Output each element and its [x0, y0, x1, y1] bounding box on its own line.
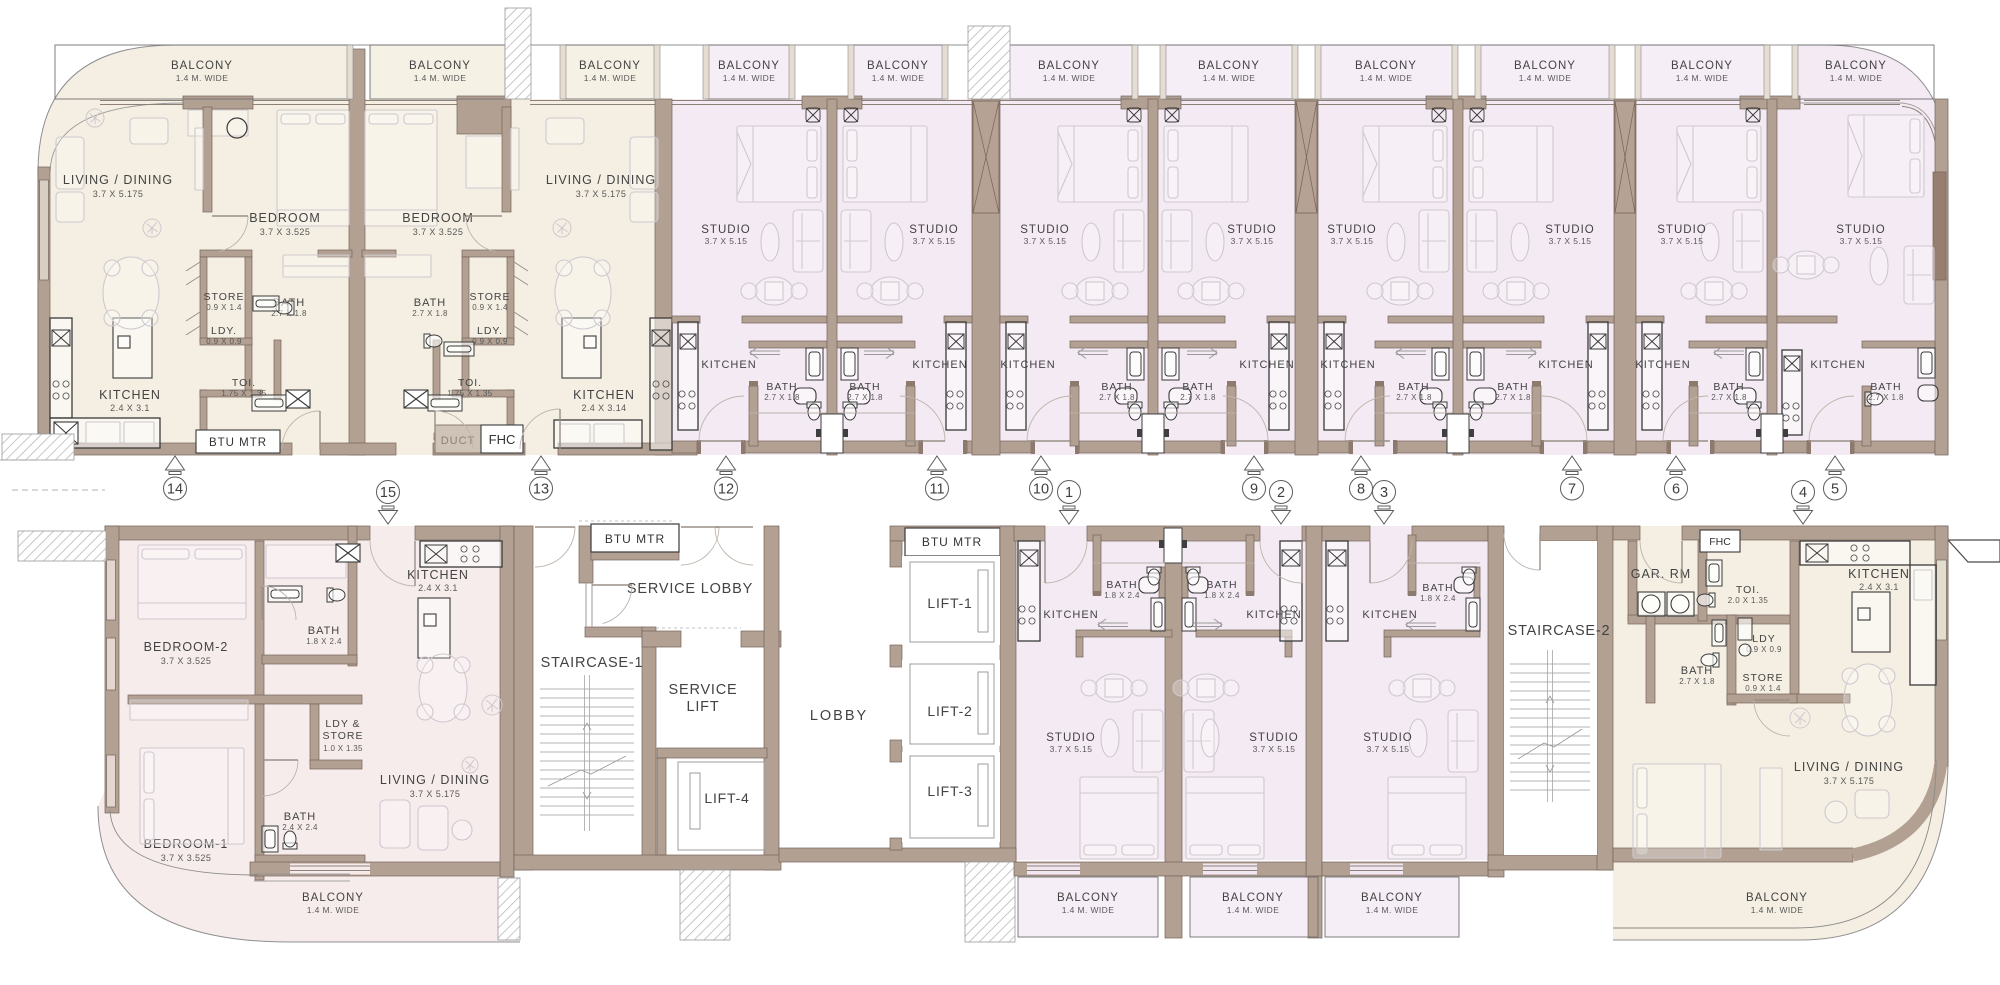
svg-text:3.7 X 5.15: 3.7 X 5.15	[1050, 744, 1093, 754]
svg-text:BALCONY: BALCONY	[1222, 892, 1284, 904]
svg-text:LIFT-4: LIFT-4	[704, 790, 749, 806]
svg-text:KITCHEN: KITCHEN	[1246, 609, 1301, 621]
svg-text:KITCHEN: KITCHEN	[912, 359, 967, 371]
svg-text:0.9 X 1.4: 0.9 X 1.4	[472, 303, 508, 312]
svg-text:5: 5	[1831, 482, 1839, 498]
svg-text:2.4 X 3.14: 2.4 X 3.14	[581, 403, 626, 413]
svg-text:3.7 X 5.15: 3.7 X 5.15	[913, 236, 956, 246]
svg-text:1.4 M. WIDE: 1.4 M. WIDE	[176, 73, 229, 83]
svg-text:KITCHEN: KITCHEN	[1810, 359, 1865, 371]
svg-text:LDY &: LDY &	[325, 718, 360, 730]
svg-text:KITCHEN: KITCHEN	[99, 388, 161, 402]
svg-text:BTU MTR: BTU MTR	[922, 535, 982, 549]
svg-text:BALCONY: BALCONY	[1198, 60, 1260, 72]
svg-text:3.7 X 3.525: 3.7 X 3.525	[161, 853, 211, 863]
svg-text:1.0 X 1.35: 1.0 X 1.35	[323, 744, 363, 753]
svg-text:SERVICE LOBBY: SERVICE LOBBY	[627, 581, 753, 597]
svg-text:2.7 X 1.8: 2.7 X 1.8	[764, 393, 800, 402]
svg-text:8: 8	[1357, 482, 1365, 498]
svg-text:3.7 X 5.15: 3.7 X 5.15	[1367, 744, 1410, 754]
svg-text:2.4 X 3.1: 2.4 X 3.1	[1859, 582, 1899, 592]
svg-text:1.4 M. WIDE: 1.4 M. WIDE	[1360, 73, 1413, 83]
svg-text:0.9 X 1.4: 0.9 X 1.4	[206, 303, 242, 312]
svg-text:LIFT-2: LIFT-2	[927, 703, 972, 719]
svg-text:2.4 X 3.1: 2.4 X 3.1	[418, 583, 458, 593]
svg-text:LIVING / DINING: LIVING / DINING	[63, 173, 173, 187]
svg-text:3.7 X 3.525: 3.7 X 3.525	[260, 227, 310, 237]
svg-text:STAIRCASE-2: STAIRCASE-2	[1508, 623, 1611, 639]
svg-text:2.7 X 1.8: 2.7 X 1.8	[1711, 393, 1747, 402]
svg-text:0.9 X 1.4: 0.9 X 1.4	[1745, 684, 1781, 693]
svg-text:STUDIO: STUDIO	[701, 224, 750, 236]
svg-text:3.7 X 5.175: 3.7 X 5.175	[1824, 776, 1874, 786]
svg-text:3.7 X 5.15: 3.7 X 5.15	[1549, 236, 1592, 246]
svg-text:BATH: BATH	[849, 381, 880, 393]
svg-text:BATH: BATH	[1101, 381, 1132, 393]
svg-text:STORE: STORE	[1743, 672, 1784, 684]
svg-text:14: 14	[167, 482, 183, 498]
svg-text:3.7 X 3.525: 3.7 X 3.525	[413, 227, 463, 237]
svg-text:KITCHEN: KITCHEN	[1635, 359, 1690, 371]
svg-text:3.7 X 5.175: 3.7 X 5.175	[576, 189, 626, 199]
svg-text:BEDROOM: BEDROOM	[402, 211, 474, 225]
svg-text:KITCHEN: KITCHEN	[1538, 359, 1593, 371]
svg-text:1: 1	[1065, 485, 1073, 501]
svg-text:1.4 M. WIDE: 1.4 M. WIDE	[1366, 905, 1419, 915]
svg-text:BATH: BATH	[1106, 579, 1137, 591]
svg-text:LIFT-3: LIFT-3	[927, 783, 972, 799]
svg-text:KITCHEN: KITCHEN	[1362, 609, 1417, 621]
svg-text:1.4 M. WIDE: 1.4 M. WIDE	[1062, 905, 1115, 915]
svg-text:2.4 X 3.1: 2.4 X 3.1	[110, 403, 150, 413]
svg-text:1.4 M. WIDE: 1.4 M. WIDE	[1043, 73, 1096, 83]
svg-text:STORE: STORE	[470, 291, 511, 303]
svg-text:BALCONY: BALCONY	[579, 60, 641, 72]
svg-text:BATH: BATH	[414, 297, 447, 309]
svg-text:4: 4	[1799, 485, 1807, 501]
svg-text:STORE: STORE	[323, 730, 364, 742]
svg-text:1.4 M. WIDE: 1.4 M. WIDE	[1676, 73, 1729, 83]
svg-text:STUDIO: STUDIO	[1020, 224, 1069, 236]
svg-text:13: 13	[533, 482, 549, 498]
svg-text:KITCHEN: KITCHEN	[1848, 567, 1910, 581]
svg-text:KITCHEN: KITCHEN	[1320, 359, 1375, 371]
svg-text:BALCONY: BALCONY	[171, 60, 233, 72]
svg-text:BALCONY: BALCONY	[1514, 60, 1576, 72]
svg-text:LIVING / DINING: LIVING / DINING	[380, 773, 490, 787]
svg-text:BATH: BATH	[1870, 381, 1901, 393]
svg-text:BALCONY: BALCONY	[1355, 60, 1417, 72]
svg-text:1.4 M. WIDE: 1.4 M. WIDE	[872, 73, 925, 83]
svg-text:1.4 M. WIDE: 1.4 M. WIDE	[1203, 73, 1256, 83]
svg-text:1.8 X 2.4: 1.8 X 2.4	[1420, 594, 1456, 603]
svg-text:BATH: BATH	[1182, 381, 1213, 393]
svg-text:3.7 X 5.175: 3.7 X 5.175	[93, 189, 143, 199]
svg-text:BEDROOM: BEDROOM	[249, 211, 321, 225]
svg-text:2.7 X 1.8: 2.7 X 1.8	[1679, 677, 1715, 686]
svg-text:2.7 X 1.8: 2.7 X 1.8	[1396, 393, 1432, 402]
svg-text:TOI.: TOI.	[232, 377, 256, 389]
svg-text:FHC: FHC	[489, 432, 516, 447]
svg-text:2.7 X 1.8: 2.7 X 1.8	[1180, 393, 1216, 402]
svg-text:BALCONY: BALCONY	[1825, 60, 1887, 72]
svg-text:STUDIO: STUDIO	[909, 224, 958, 236]
svg-text:3.7 X 5.15: 3.7 X 5.15	[1331, 236, 1374, 246]
svg-text:3.7 X 5.15: 3.7 X 5.15	[1661, 236, 1704, 246]
svg-text:15: 15	[380, 485, 396, 501]
svg-text:7: 7	[1568, 482, 1576, 498]
svg-text:BATH: BATH	[284, 811, 317, 823]
svg-text:LOBBY: LOBBY	[810, 708, 868, 724]
svg-text:KITCHEN: KITCHEN	[573, 388, 635, 402]
svg-text:0.9 X 0.9: 0.9 X 0.9	[206, 337, 242, 346]
svg-text:2.0 X 1.35: 2.0 X 1.35	[1728, 596, 1769, 605]
svg-text:KITCHEN: KITCHEN	[1239, 359, 1294, 371]
svg-text:BTU MTR: BTU MTR	[605, 532, 665, 546]
svg-text:3: 3	[1380, 485, 1388, 501]
svg-text:SERVICE: SERVICE	[669, 682, 738, 698]
svg-text:FHC: FHC	[1709, 536, 1731, 548]
svg-text:1.4 M. WIDE: 1.4 M. WIDE	[723, 73, 776, 83]
svg-text:STUDIO: STUDIO	[1545, 224, 1594, 236]
svg-text:12: 12	[718, 482, 734, 498]
svg-text:BALCONY: BALCONY	[1057, 892, 1119, 904]
svg-text:STUDIO: STUDIO	[1249, 732, 1298, 744]
svg-text:2.7 X 1.8: 2.7 X 1.8	[1099, 393, 1135, 402]
svg-text:0.9 X 0.9: 0.9 X 0.9	[472, 337, 508, 346]
svg-text:BATH: BATH	[308, 625, 341, 637]
svg-text:KITCHEN: KITCHEN	[701, 359, 756, 371]
svg-text:STUDIO: STUDIO	[1363, 732, 1412, 744]
svg-text:BATH: BATH	[766, 381, 797, 393]
svg-text:BALCONY: BALCONY	[1038, 60, 1100, 72]
svg-text:2.7 X 1.8: 2.7 X 1.8	[1495, 393, 1531, 402]
svg-text:3.7 X 5.15: 3.7 X 5.15	[1024, 236, 1067, 246]
svg-text:2: 2	[1277, 485, 1285, 501]
svg-text:1.4 M. WIDE: 1.4 M. WIDE	[1751, 905, 1804, 915]
svg-text:BTU MTR: BTU MTR	[209, 437, 267, 449]
svg-text:BATH: BATH	[1206, 579, 1237, 591]
svg-text:BATH: BATH	[1681, 665, 1714, 677]
svg-text:LIFT-1: LIFT-1	[927, 595, 972, 611]
svg-text:1.4 M. WIDE: 1.4 M. WIDE	[584, 73, 637, 83]
svg-text:9: 9	[1250, 482, 1258, 498]
svg-text:LIVING / DINING: LIVING / DINING	[1794, 760, 1904, 774]
svg-text:2.7 X 1.8: 2.7 X 1.8	[412, 309, 448, 318]
svg-text:BALCONY: BALCONY	[302, 892, 364, 904]
svg-text:LIVING / DINING: LIVING / DINING	[546, 173, 656, 187]
svg-text:STUDIO: STUDIO	[1327, 224, 1376, 236]
svg-text:BATH: BATH	[1398, 381, 1429, 393]
svg-text:0.9 X 0.9: 0.9 X 0.9	[1746, 645, 1782, 654]
svg-text:BALCONY: BALCONY	[409, 60, 471, 72]
svg-text:1.4 M. WIDE: 1.4 M. WIDE	[414, 73, 467, 83]
svg-text:1.4 M. WIDE: 1.4 M. WIDE	[1227, 905, 1280, 915]
svg-text:BATH: BATH	[1422, 582, 1453, 594]
svg-text:2.7 X 1.8: 2.7 X 1.8	[1868, 393, 1904, 402]
svg-text:LDY: LDY	[1752, 633, 1775, 645]
svg-text:KITCHEN: KITCHEN	[1000, 359, 1055, 371]
svg-text:STUDIO: STUDIO	[1657, 224, 1706, 236]
svg-text:STORE: STORE	[204, 291, 245, 303]
svg-text:3.7 X 5.15: 3.7 X 5.15	[705, 236, 748, 246]
svg-text:3.7 X 3.525: 3.7 X 3.525	[161, 656, 211, 666]
svg-text:3.7 X 5.15: 3.7 X 5.15	[1231, 236, 1274, 246]
svg-text:TOI.: TOI.	[458, 377, 482, 389]
svg-text:STUDIO: STUDIO	[1046, 732, 1095, 744]
svg-text:TOI.: TOI.	[1736, 584, 1760, 596]
svg-text:KITCHEN: KITCHEN	[1043, 609, 1098, 621]
svg-text:STUDIO: STUDIO	[1227, 224, 1276, 236]
svg-text:11: 11	[929, 482, 944, 498]
svg-text:BEDROOM-2: BEDROOM-2	[144, 640, 229, 654]
svg-text:2.4 X 2.4: 2.4 X 2.4	[282, 823, 318, 832]
svg-text:KITCHEN: KITCHEN	[407, 568, 469, 582]
svg-text:BALCONY: BALCONY	[867, 60, 929, 72]
svg-text:1.8 X 2.4: 1.8 X 2.4	[306, 637, 342, 646]
svg-text:1.4 M. WIDE: 1.4 M. WIDE	[1519, 73, 1572, 83]
svg-text:2.7 X 1.8: 2.7 X 1.8	[847, 393, 883, 402]
svg-text:3.7 X 5.15: 3.7 X 5.15	[1253, 744, 1296, 754]
svg-text:STUDIO: STUDIO	[1836, 224, 1885, 236]
svg-text:BATH: BATH	[1497, 381, 1528, 393]
svg-text:3.7 X 5.175: 3.7 X 5.175	[410, 789, 460, 799]
svg-text:DUCT: DUCT	[441, 435, 476, 447]
svg-text:BALCONY: BALCONY	[1671, 60, 1733, 72]
svg-text:LDY.: LDY.	[211, 325, 237, 337]
svg-text:BALCONY: BALCONY	[1361, 892, 1423, 904]
svg-text:1.8 X 2.4: 1.8 X 2.4	[1204, 591, 1240, 600]
svg-text:1.8 X 2.4: 1.8 X 2.4	[1104, 591, 1140, 600]
svg-text:STAIRCASE-1: STAIRCASE-1	[541, 655, 644, 671]
svg-text:BATH: BATH	[1713, 381, 1744, 393]
svg-text:BALCONY: BALCONY	[718, 60, 780, 72]
svg-text:LDY.: LDY.	[477, 325, 503, 337]
svg-text:6: 6	[1672, 482, 1680, 498]
svg-text:1.4 M. WIDE: 1.4 M. WIDE	[307, 905, 360, 915]
svg-text:1.4 M. WIDE: 1.4 M. WIDE	[1830, 73, 1883, 83]
svg-text:3.7 X 5.15: 3.7 X 5.15	[1840, 236, 1883, 246]
svg-text:BALCONY: BALCONY	[1746, 892, 1808, 904]
svg-text:10: 10	[1033, 482, 1049, 498]
svg-text:LIFT: LIFT	[686, 699, 719, 715]
